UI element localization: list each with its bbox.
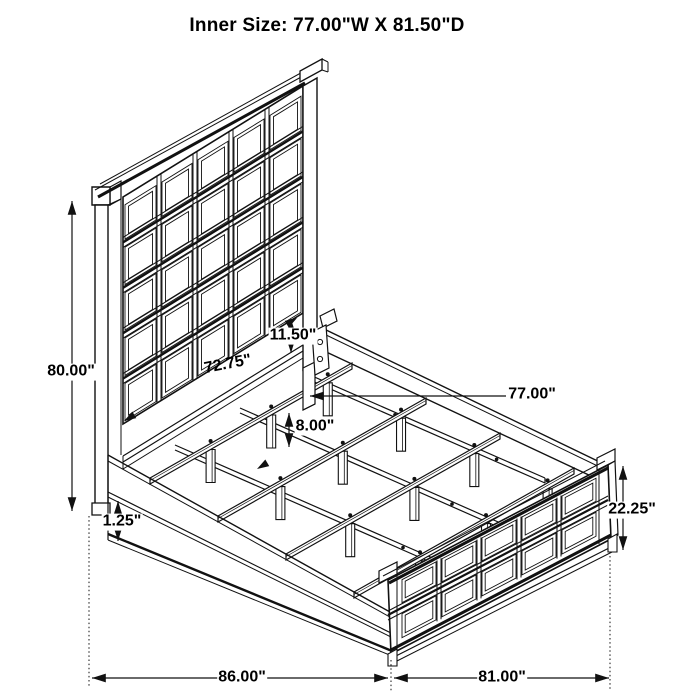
bed-isometric-drawing: [0, 0, 700, 700]
dim-label-headboard-rail-gap: 11.50": [269, 328, 318, 345]
dim-label-footboard-height: 22.25": [607, 502, 657, 519]
dim-label-overall-depth: 86.00": [217, 670, 267, 687]
dim-label-support-leg-height: 8.00": [295, 419, 336, 436]
dim-label-overall-width: 81.00": [477, 670, 527, 687]
dim-label-rail-lip: 1.25": [102, 514, 143, 531]
dim-label-inner-width: 77.00": [507, 387, 557, 404]
diagram-canvas: Inner Size: 77.00"W X 81.50"D 80.00" 72.…: [0, 0, 700, 700]
dim-label-overall-height: 80.00": [46, 364, 96, 381]
page-title: Inner Size: 77.00"W X 81.50"D: [189, 15, 464, 37]
